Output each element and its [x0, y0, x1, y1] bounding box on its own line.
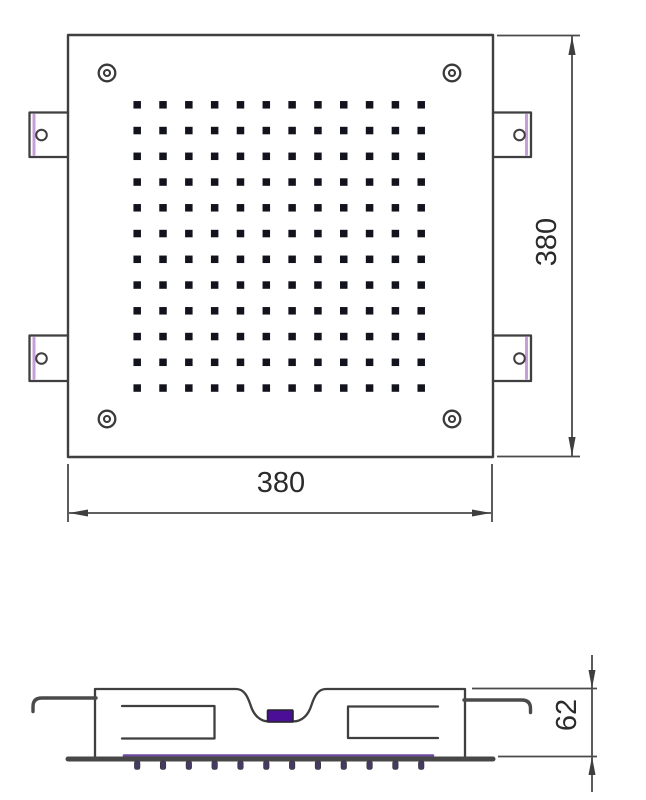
nozzle: [392, 307, 400, 315]
nozzle: [417, 333, 425, 341]
nozzle: [340, 178, 348, 186]
nozzle-tooth: [289, 761, 295, 770]
nozzle: [288, 359, 296, 367]
nozzle: [211, 178, 219, 186]
nozzle: [314, 384, 322, 392]
nozzle: [133, 281, 141, 289]
nozzle: [392, 127, 400, 135]
nozzle: [314, 178, 322, 186]
nozzle: [263, 256, 271, 263]
nozzle: [366, 256, 374, 263]
nozzle: [417, 153, 425, 161]
nozzle: [314, 256, 322, 263]
nozzle: [159, 281, 167, 289]
nozzle: [288, 333, 296, 341]
nozzle: [417, 127, 425, 135]
nozzle: [263, 153, 271, 161]
nozzle: [185, 384, 193, 392]
nozzle: [185, 204, 193, 212]
nozzle: [366, 384, 374, 392]
nozzle: [263, 230, 271, 238]
nozzle: [314, 359, 322, 367]
nozzle: [340, 204, 348, 212]
nozzle: [340, 230, 348, 238]
top-view: [30, 35, 532, 457]
nozzle: [159, 307, 167, 315]
nozzle: [237, 384, 245, 392]
nozzle: [417, 281, 425, 289]
nozzle: [133, 256, 141, 263]
nozzle: [133, 127, 141, 135]
nozzle: [237, 230, 245, 238]
nozzle-tooth: [238, 761, 244, 770]
nozzle: [340, 127, 348, 135]
nozzle: [185, 256, 193, 263]
nozzle: [392, 153, 400, 161]
screw-hole-bottom-left: [99, 411, 116, 428]
nozzle: [314, 101, 322, 109]
nozzle: [185, 230, 193, 238]
nozzle: [366, 359, 374, 367]
nozzle: [417, 230, 425, 238]
nozzle: [159, 256, 167, 263]
nozzle: [288, 178, 296, 186]
nozzle: [366, 153, 374, 161]
nozzle: [211, 281, 219, 289]
nozzle: [392, 101, 400, 109]
nozzle: [366, 307, 374, 315]
nozzle: [392, 359, 400, 367]
nozzle: [133, 153, 141, 161]
nozzle: [133, 333, 141, 341]
technical-drawing-page: 380 380 62: [0, 0, 646, 800]
nozzle: [185, 359, 193, 367]
nozzle: [211, 127, 219, 135]
nozzle: [340, 359, 348, 367]
nozzle: [417, 256, 425, 263]
nozzle: [237, 307, 245, 315]
nozzle: [392, 281, 400, 289]
nozzle: [211, 101, 219, 109]
nozzle: [392, 384, 400, 392]
nozzle: [417, 359, 425, 367]
nozzle: [340, 333, 348, 341]
nozzle: [159, 384, 167, 392]
nozzle-tooth: [341, 761, 347, 770]
nozzle: [314, 127, 322, 135]
nozzle: [288, 307, 296, 315]
nozzle: [133, 204, 141, 212]
screw-hole-top-left: [99, 65, 116, 82]
nozzle: [237, 281, 245, 289]
nozzle: [185, 153, 193, 161]
depth-dimension-label: 62: [551, 699, 583, 731]
nozzle: [392, 256, 400, 263]
nozzle: [263, 307, 271, 315]
nozzle: [159, 333, 167, 341]
nozzle: [366, 127, 374, 135]
nozzle: [237, 101, 245, 109]
nozzle: [366, 101, 374, 109]
nozzle: [133, 230, 141, 238]
nozzle: [159, 204, 167, 212]
nozzle: [263, 359, 271, 367]
nozzle: [237, 178, 245, 186]
nozzle: [185, 178, 193, 186]
width-dimension-label: 380: [257, 467, 305, 499]
nozzle: [288, 204, 296, 212]
nozzle: [392, 230, 400, 238]
nozzle: [185, 307, 193, 315]
nozzle: [211, 307, 219, 315]
nozzle: [263, 204, 271, 212]
nozzle: [237, 359, 245, 367]
nozzle: [366, 333, 374, 341]
nozzle: [314, 153, 322, 161]
nozzle: [392, 178, 400, 186]
nozzle: [340, 256, 348, 263]
nozzle: [185, 101, 193, 109]
screw-hole-bottom-right: [444, 411, 461, 428]
shower-head-drawing: 380 380 62: [0, 0, 646, 800]
nozzle-tooth: [212, 761, 218, 770]
nozzle: [159, 153, 167, 161]
nozzle: [417, 384, 425, 392]
nozzle: [237, 153, 245, 161]
nozzle: [185, 127, 193, 135]
nozzle-tooth: [186, 761, 192, 770]
nozzle: [263, 333, 271, 341]
nozzle: [159, 230, 167, 238]
nozzle: [211, 333, 219, 341]
nozzle-tooth: [315, 761, 321, 770]
nozzle: [288, 281, 296, 289]
nozzle: [211, 359, 219, 367]
nozzle: [185, 333, 193, 341]
nozzle: [159, 101, 167, 109]
nozzle: [392, 333, 400, 341]
bracket-hole: [36, 130, 47, 141]
nozzle: [288, 230, 296, 238]
bracket-hole: [514, 353, 525, 364]
nozzle: [417, 101, 425, 109]
nozzle: [159, 178, 167, 186]
water-inlet: [268, 710, 294, 722]
nozzle-tooth: [393, 761, 399, 770]
nozzle: [366, 178, 374, 186]
nozzle: [314, 204, 322, 212]
nozzle: [340, 307, 348, 315]
nozzle: [237, 204, 245, 212]
nozzle: [263, 384, 271, 392]
nozzle: [133, 384, 141, 392]
nozzle-tooth: [418, 761, 424, 770]
nozzle: [417, 204, 425, 212]
nozzle: [211, 384, 219, 392]
nozzle: [366, 204, 374, 212]
nozzle: [340, 153, 348, 161]
nozzle-tooth: [160, 761, 166, 770]
bracket-hole: [514, 130, 525, 141]
nozzle: [185, 281, 193, 289]
nozzle: [237, 127, 245, 135]
nozzle: [288, 127, 296, 135]
nozzle-tooth: [264, 761, 270, 770]
nozzle: [263, 127, 271, 135]
nozzle-tooth: [134, 761, 140, 770]
nozzle: [133, 101, 141, 109]
nozzle: [133, 307, 141, 315]
nozzle: [263, 281, 271, 289]
nozzle: [417, 178, 425, 186]
screw-hole-top-right: [444, 65, 461, 82]
nozzle: [211, 153, 219, 161]
nozzle: [263, 178, 271, 186]
nozzle: [340, 281, 348, 289]
nozzle-tooth: [367, 761, 373, 770]
nozzle: [314, 281, 322, 289]
bracket-hole: [36, 353, 47, 364]
nozzle: [417, 307, 425, 315]
nozzle: [340, 101, 348, 109]
nozzle: [314, 333, 322, 341]
nozzle: [133, 178, 141, 186]
nozzle: [288, 384, 296, 392]
nozzle: [159, 359, 167, 367]
nozzle: [211, 204, 219, 212]
nozzle: [133, 359, 141, 367]
nozzle: [314, 307, 322, 315]
nozzle: [366, 281, 374, 289]
nozzle: [288, 153, 296, 161]
nozzle: [263, 101, 271, 109]
nozzle: [288, 256, 296, 263]
nozzle: [392, 204, 400, 212]
nozzle: [159, 127, 167, 135]
nozzle: [237, 333, 245, 341]
nozzle: [366, 230, 374, 238]
nozzle: [340, 384, 348, 392]
faceplate-outline: [68, 35, 493, 457]
nozzle: [237, 256, 245, 263]
height-dimension-label: 380: [531, 218, 563, 266]
nozzle: [314, 230, 322, 238]
nozzle: [211, 230, 219, 238]
nozzle: [211, 256, 219, 263]
nozzle: [288, 101, 296, 109]
